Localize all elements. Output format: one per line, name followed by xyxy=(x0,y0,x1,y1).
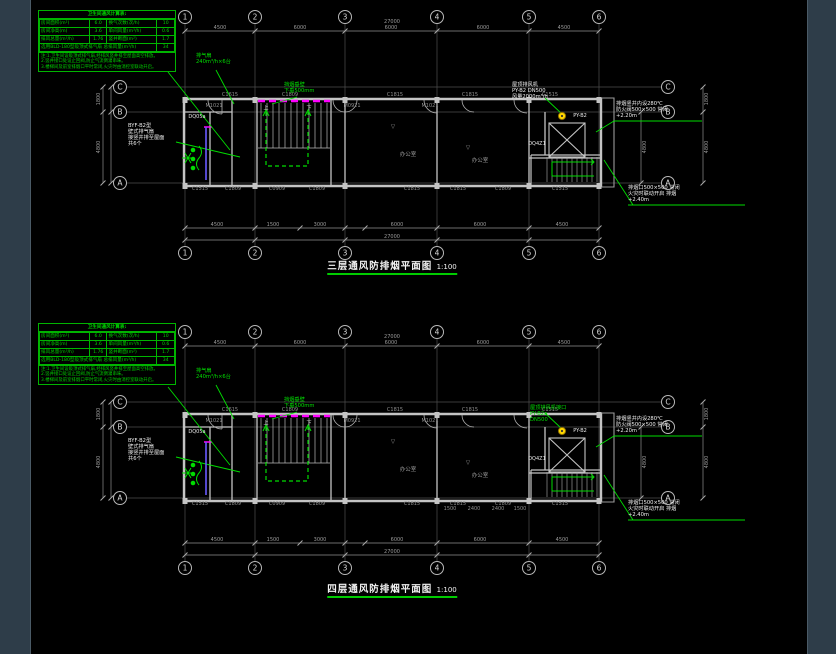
legend-cell: 0.6 xyxy=(157,341,175,349)
legend-title: 卫生间通风计算表: xyxy=(39,324,175,332)
legend-cell: 竖井断面(m²) xyxy=(107,36,157,44)
legend-note-line: 3.楼梯间及前室排烟口平时常闭,火灾时由消控室联动开启。 xyxy=(41,65,173,70)
legend-merged-value: 34 xyxy=(157,357,175,365)
legend-cell: 6.0 xyxy=(89,333,107,341)
legend-rows: 房间面积(m²)6.0换气次数(次/h)10房间净高(m)3.6单间风量(m³/… xyxy=(39,19,175,52)
cad-viewport: 卫生间通风计算表: 房间面积(m²)6.0换气次数(次/h)10房间净高(m)3… xyxy=(0,0,836,654)
plan-title-text: 三层通风防排烟平面图 xyxy=(327,261,432,272)
legend-cell: 3.6 xyxy=(89,28,107,36)
legend-cell: 10 xyxy=(157,333,175,341)
legend-cell: 房间净高(m) xyxy=(40,341,90,349)
legend-table-3f: 卫生间通风计算表: 房间面积(m²)6.0换气次数(次/h)10房间净高(m)3… xyxy=(38,10,176,72)
plan-scale: 1:100 xyxy=(437,586,457,594)
legend-cell: 换气次数(次/h) xyxy=(107,333,157,341)
plan-title-text: 四层通风防排烟平面图 xyxy=(327,584,432,595)
legend-merged-value: 34 xyxy=(157,44,175,52)
legend-cell: 单间风量(m³/h) xyxy=(107,341,157,349)
legend-cell: 房间面积(m²) xyxy=(40,333,90,341)
legend-cell: 1.7 xyxy=(157,349,175,357)
legend-cell: 竖井断面(m²) xyxy=(107,349,157,357)
legend-cell: 0.6 xyxy=(157,28,175,36)
plan-title-4f: 四层通风防排烟平面图 1:100 xyxy=(327,581,457,598)
legend-notes: 注:1.卫生间设吸顶式排气扇,经排风竖井排至屋面高空排放。2.竖井接口处设止回阀… xyxy=(39,365,175,384)
legend-cell: 房间面积(m²) xyxy=(40,20,90,28)
legend-cell: 换气次数(次/h) xyxy=(107,20,157,28)
floor-plan-3f-lines xyxy=(101,11,746,260)
legend-rows: 房间面积(m²)6.0换气次数(次/h)10房间净高(m)3.6单间风量(m³/… xyxy=(39,332,175,365)
legend-cell: 1.7 xyxy=(157,36,175,44)
floor-plan-4f-lines xyxy=(101,326,746,575)
legend-cell: 6.0 xyxy=(89,20,107,28)
legend-cell: 排风总量(m³/h) xyxy=(40,349,90,357)
legend-merged-label: 选用BLD-180型吸顶式排气扇 总排风量(m³/h) xyxy=(40,357,157,365)
legend-cell: 排风总量(m³/h) xyxy=(40,36,90,44)
legend-cell: 单间风量(m³/h) xyxy=(107,28,157,36)
legend-cell: 1.76 xyxy=(89,36,107,44)
legend-cell: 10 xyxy=(157,20,175,28)
legend-cell: 3.6 xyxy=(89,341,107,349)
legend-table-4f: 卫生间通风计算表: 房间面积(m²)6.0换气次数(次/h)10房间净高(m)3… xyxy=(38,323,176,385)
legend-merged-label: 选用BLD-180型吸顶式排气扇 总排风量(m³/h) xyxy=(40,44,157,52)
legend-title: 卫生间通风计算表: xyxy=(39,11,175,19)
legend-notes: 注:1.卫生间设吸顶式排气扇,经排风竖井排至屋面高空排放。2.竖井接口处设止回阀… xyxy=(39,52,175,71)
legend-cell: 房间净高(m) xyxy=(40,28,90,36)
plan-title-3f: 三层通风防排烟平面图 1:100 xyxy=(327,258,457,275)
plan-scale: 1:100 xyxy=(437,263,457,271)
legend-cell: 1.76 xyxy=(89,349,107,357)
legend-note-line: 3.楼梯间及前室排烟口平时常闭,火灾时由消控室联动开启。 xyxy=(41,378,173,383)
